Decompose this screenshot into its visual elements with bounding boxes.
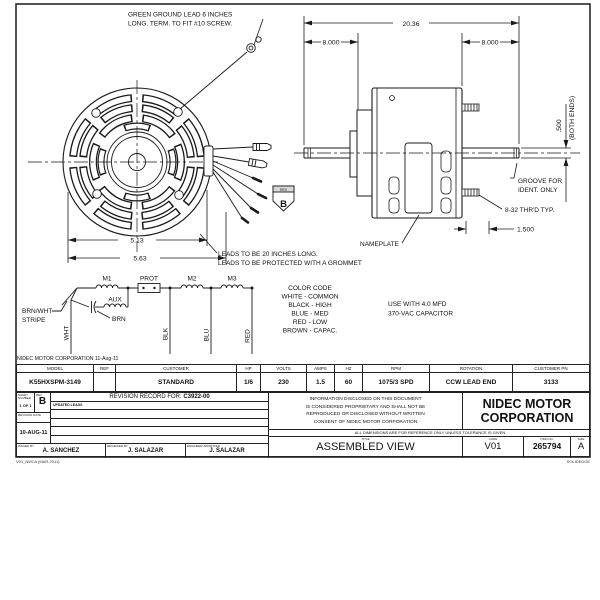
dim-bolt-circle: 5.13 — [130, 238, 143, 245]
ground-note-line1: GREEN GROUND LEAD 6 INCHES — [128, 12, 233, 19]
proprietary-line: IS CONSIDERED PROPRIETARY AND SHALL NOT … — [269, 404, 462, 412]
revision-date-cell: 10-AUG-11 — [17, 423, 51, 444]
size-cell: SIZE A — [571, 437, 591, 458]
corp-date-note: NIDEC MOTOR CORPORATION 11-Aug-11 — [17, 356, 118, 362]
color-code-brown: BROWN - CAPAC. — [283, 328, 338, 335]
form-number-footer: V01_NMCA (MAR-2011) — [16, 459, 60, 464]
issued-by-cell: ISSUED BY A. SANCHEZ — [17, 444, 106, 458]
tolerance-note: ALL DIMENSIONS ARE FOR REFERENCE ONLY UN… — [269, 430, 591, 437]
revision-record-label: REVISION RECORD FOR: — [109, 394, 181, 400]
color-code-red: RED - LOW — [293, 319, 328, 326]
revision-record-number: C3922-00 — [183, 394, 209, 400]
label-blu: BLU — [204, 328, 211, 341]
groove-note-line2: IDENT. ONLY — [518, 187, 558, 194]
spec-header-hp: HP — [237, 365, 261, 373]
drawing-sheet: REV B — [0, 0, 600, 600]
label-m1: M1 — [102, 276, 111, 283]
revision-entry-row: UPDATED LEADS — [51, 402, 269, 410]
dim-right-shaft: 8.000 — [481, 40, 498, 47]
spec-value-hp: 1/6 — [237, 373, 261, 391]
coil-m1 — [96, 285, 118, 288]
ground-lead — [180, 37, 261, 109]
cad-system-footer: SOLIDEDGE — [540, 459, 590, 464]
protector-box — [138, 284, 160, 293]
label-aux: AUX — [108, 297, 122, 304]
spec-table: MODEL REF CUSTOMER HP VOLTS AMPS HZ RPM … — [16, 364, 590, 392]
engineer-approved-value: J. SALAZAR — [186, 448, 268, 454]
dim-shell: 5.63 — [133, 256, 146, 263]
spec-header-ref: REF — [94, 365, 116, 373]
color-code-white: WHITE - COMMON — [281, 294, 338, 301]
motor-side-view — [294, 88, 580, 218]
rev-cell: REV B — [35, 393, 51, 413]
title-block: SHEET NUMBER 1 OF 1 REV B REVISION DATE … — [16, 392, 590, 457]
label-brn: BRN — [112, 316, 126, 323]
dim-shaft-dia: .500 — [556, 119, 563, 132]
color-code-black: BLACK - HIGH — [288, 302, 332, 309]
spec-header-rotation: ROTATION — [430, 365, 513, 373]
spec-value-rotation: CCW LEAD END — [430, 373, 513, 391]
revision-empty-row — [51, 427, 269, 436]
capacitor-note-line2: 370-VAC CAPACITOR — [388, 311, 453, 318]
spade-terminal — [248, 159, 267, 169]
ground-note-line2: LONG. TERM. TO FIT #10 SCREW. — [128, 21, 232, 28]
code-cell: CODE V01 — [463, 437, 524, 458]
spec-value-rpm: 1075/3 SPD — [363, 373, 430, 391]
proprietary-line: INFORMATION DISCLOSED ON THIS DOCUMENT — [269, 396, 462, 404]
color-code-blue: BLUE - MED — [291, 311, 329, 318]
dim-stud: 1.500 — [517, 227, 534, 234]
revision-empty-row — [51, 410, 269, 419]
proprietary-notice: INFORMATION DISCLOSED ON THIS DOCUMENT I… — [269, 393, 463, 430]
revision-record-header: REVISION RECORD FOR: C3922-00 — [51, 393, 269, 402]
dim-overall: 20.36 — [402, 21, 419, 28]
label-m3: M3 — [227, 276, 236, 283]
label-wht: WHT — [64, 326, 71, 341]
proprietary-line: REPRODUCED OR DISCLOSED WITHOUT WRITTEN — [269, 411, 462, 419]
item-no-value: 265794 — [524, 441, 570, 451]
revision-date-label-cell: REVISION DATE — [17, 413, 51, 423]
rev-value: B — [35, 397, 50, 407]
leads-note-line1: LEADS TO BE 20 INCHES LONG. — [218, 251, 318, 258]
label-red: RED — [245, 329, 252, 343]
spec-header-volts: VOLTS — [261, 365, 307, 373]
title-cell: TITLE ASSEMBLED VIEW — [269, 437, 463, 458]
coil-m2 — [181, 285, 203, 288]
proprietary-line: CONSENT OF NIDEC MOTOR CORPORATION — [269, 419, 462, 427]
engineering-drawing: REV B — [0, 0, 600, 600]
code-value: V01 — [463, 441, 523, 452]
spec-header-rpm: RPM — [363, 365, 430, 373]
item-no-cell: ITEM NO. 265794 — [524, 437, 571, 458]
threaded-stud — [462, 104, 479, 196]
grommet — [204, 146, 213, 176]
dim-left-shaft: 8.000 — [322, 40, 339, 47]
label-brnwht-line1: BRN/WHT — [22, 308, 52, 315]
sheet-number-label: SHEET NUMBER — [17, 393, 34, 401]
spec-value-amps: 1.5 — [307, 373, 335, 391]
thread-note: 8-32 THR'D TYP. — [505, 207, 554, 214]
reviewed-by-cell: REVIEWED BY J. SALAZAR — [106, 444, 186, 458]
motor-leads — [213, 144, 271, 223]
title-value: ASSEMBLED VIEW — [269, 441, 462, 453]
rev-flag-value: B — [280, 199, 287, 210]
spec-value-volts: 230 — [261, 373, 307, 391]
sheet-number-value: 1 OF 1 — [17, 403, 34, 408]
groove-note-line1: GROOVE FOR — [518, 178, 562, 185]
spec-value-model: K55HXSPM-3149 — [17, 373, 94, 391]
company-name-line1: NIDEC MOTOR — [463, 397, 591, 411]
spec-value-hz: 60 — [335, 373, 363, 391]
revision-empty-row — [51, 419, 269, 428]
label-m2: M2 — [187, 276, 196, 283]
spec-header-amps: AMPS — [307, 365, 335, 373]
revision-empty-row — [51, 436, 269, 445]
engineer-approved-cell: ENGINEER APPROVED J. SALAZAR — [186, 444, 269, 458]
spec-header-customer-pn: CUSTOMER PN — [513, 365, 589, 373]
issued-by-value: A. SANCHEZ — [17, 448, 105, 454]
dim-both-ends: (BOTH ENDS) — [569, 96, 576, 140]
nameplate-label: NAMEPLATE — [360, 241, 400, 248]
coil-m3 — [221, 285, 243, 288]
spec-header-model: MODEL — [17, 365, 94, 373]
leads-note-line2: LEADS TO BE PROTECTED WITH A GROMMET — [218, 260, 362, 267]
label-blk: BLK — [163, 327, 170, 340]
company-name: NIDEC MOTOR CORPORATION — [463, 393, 591, 430]
capacitor-note-line1: USE WITH 4.0 MFD — [388, 301, 447, 308]
revision-date-value: 10-AUG-11 — [17, 430, 50, 436]
reviewed-by-value: J. SALAZAR — [106, 448, 185, 454]
wiring-schematic — [52, 284, 254, 355]
spec-value-ref — [94, 373, 116, 391]
spec-header-hz: HZ — [335, 365, 363, 373]
coil-aux — [104, 304, 126, 307]
spec-header-customer: CUSTOMER — [116, 365, 237, 373]
revision-date-label: REVISION DATE — [17, 413, 50, 417]
rev-flag-label: REV — [280, 188, 288, 192]
size-value: A — [571, 441, 591, 452]
spade-terminal — [253, 144, 271, 151]
spec-value-customer: STANDARD — [116, 373, 237, 391]
company-name-line2: CORPORATION — [463, 411, 591, 425]
color-code-title: COLOR CODE — [288, 285, 332, 292]
label-prot: PROT — [140, 276, 158, 283]
spec-value-customer-pn: 3133 — [513, 373, 589, 391]
sheet-number-cell: SHEET NUMBER 1 OF 1 — [17, 393, 35, 413]
label-brnwht-line2: STRIPE — [22, 317, 46, 324]
